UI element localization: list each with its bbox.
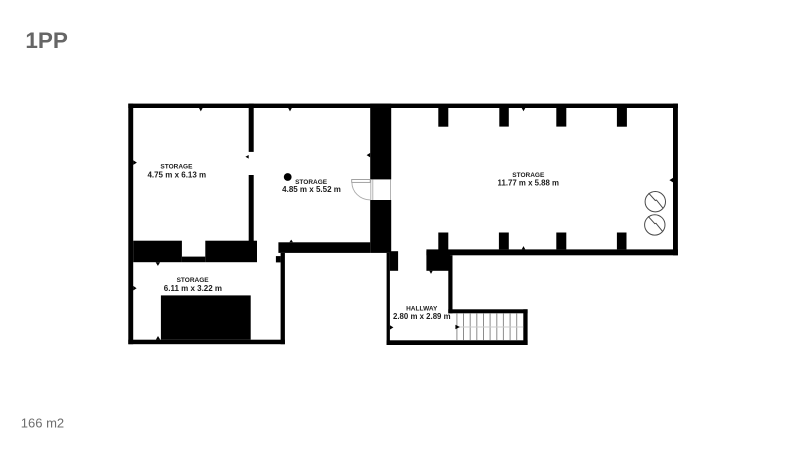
svg-text:6.11 m x 3.22 m: 6.11 m x 3.22 m — [164, 284, 222, 293]
svg-text:4.75 m x 6.13 m: 4.75 m x 6.13 m — [147, 171, 206, 180]
svg-text:11.77 m x 5.88 m: 11.77 m x 5.88 m — [498, 178, 560, 187]
svg-text:STORAGE: STORAGE — [160, 163, 193, 170]
svg-text:STORAGE: STORAGE — [177, 277, 210, 284]
svg-text:2.80 m x 2.89 m: 2.80 m x 2.89 m — [393, 312, 451, 321]
svg-text:1PP: 1PP — [25, 28, 68, 53]
svg-text:4.85 m x 5.52 m: 4.85 m x 5.52 m — [282, 185, 341, 194]
svg-text:166 m2: 166 m2 — [21, 415, 64, 430]
